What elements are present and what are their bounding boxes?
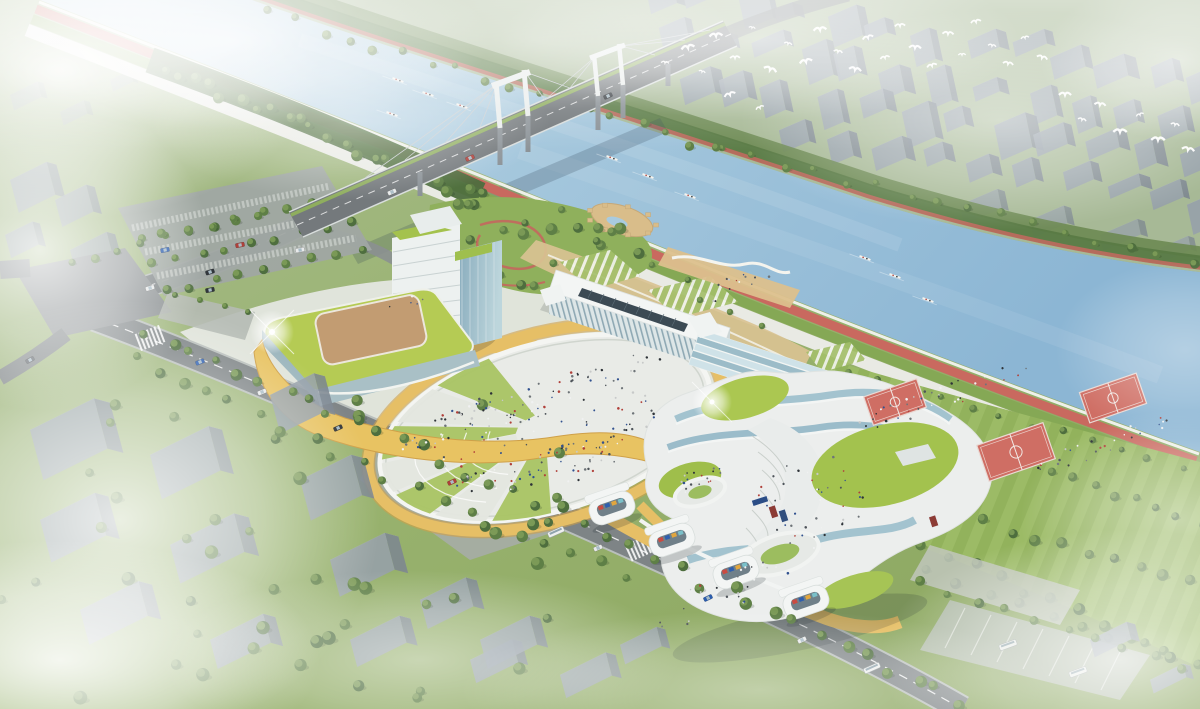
architectural-rendering: Bird's-eye architectural visualization: …: [0, 0, 1200, 709]
top-veil: [0, 0, 1200, 150]
aerial-scene: [0, 0, 1200, 709]
